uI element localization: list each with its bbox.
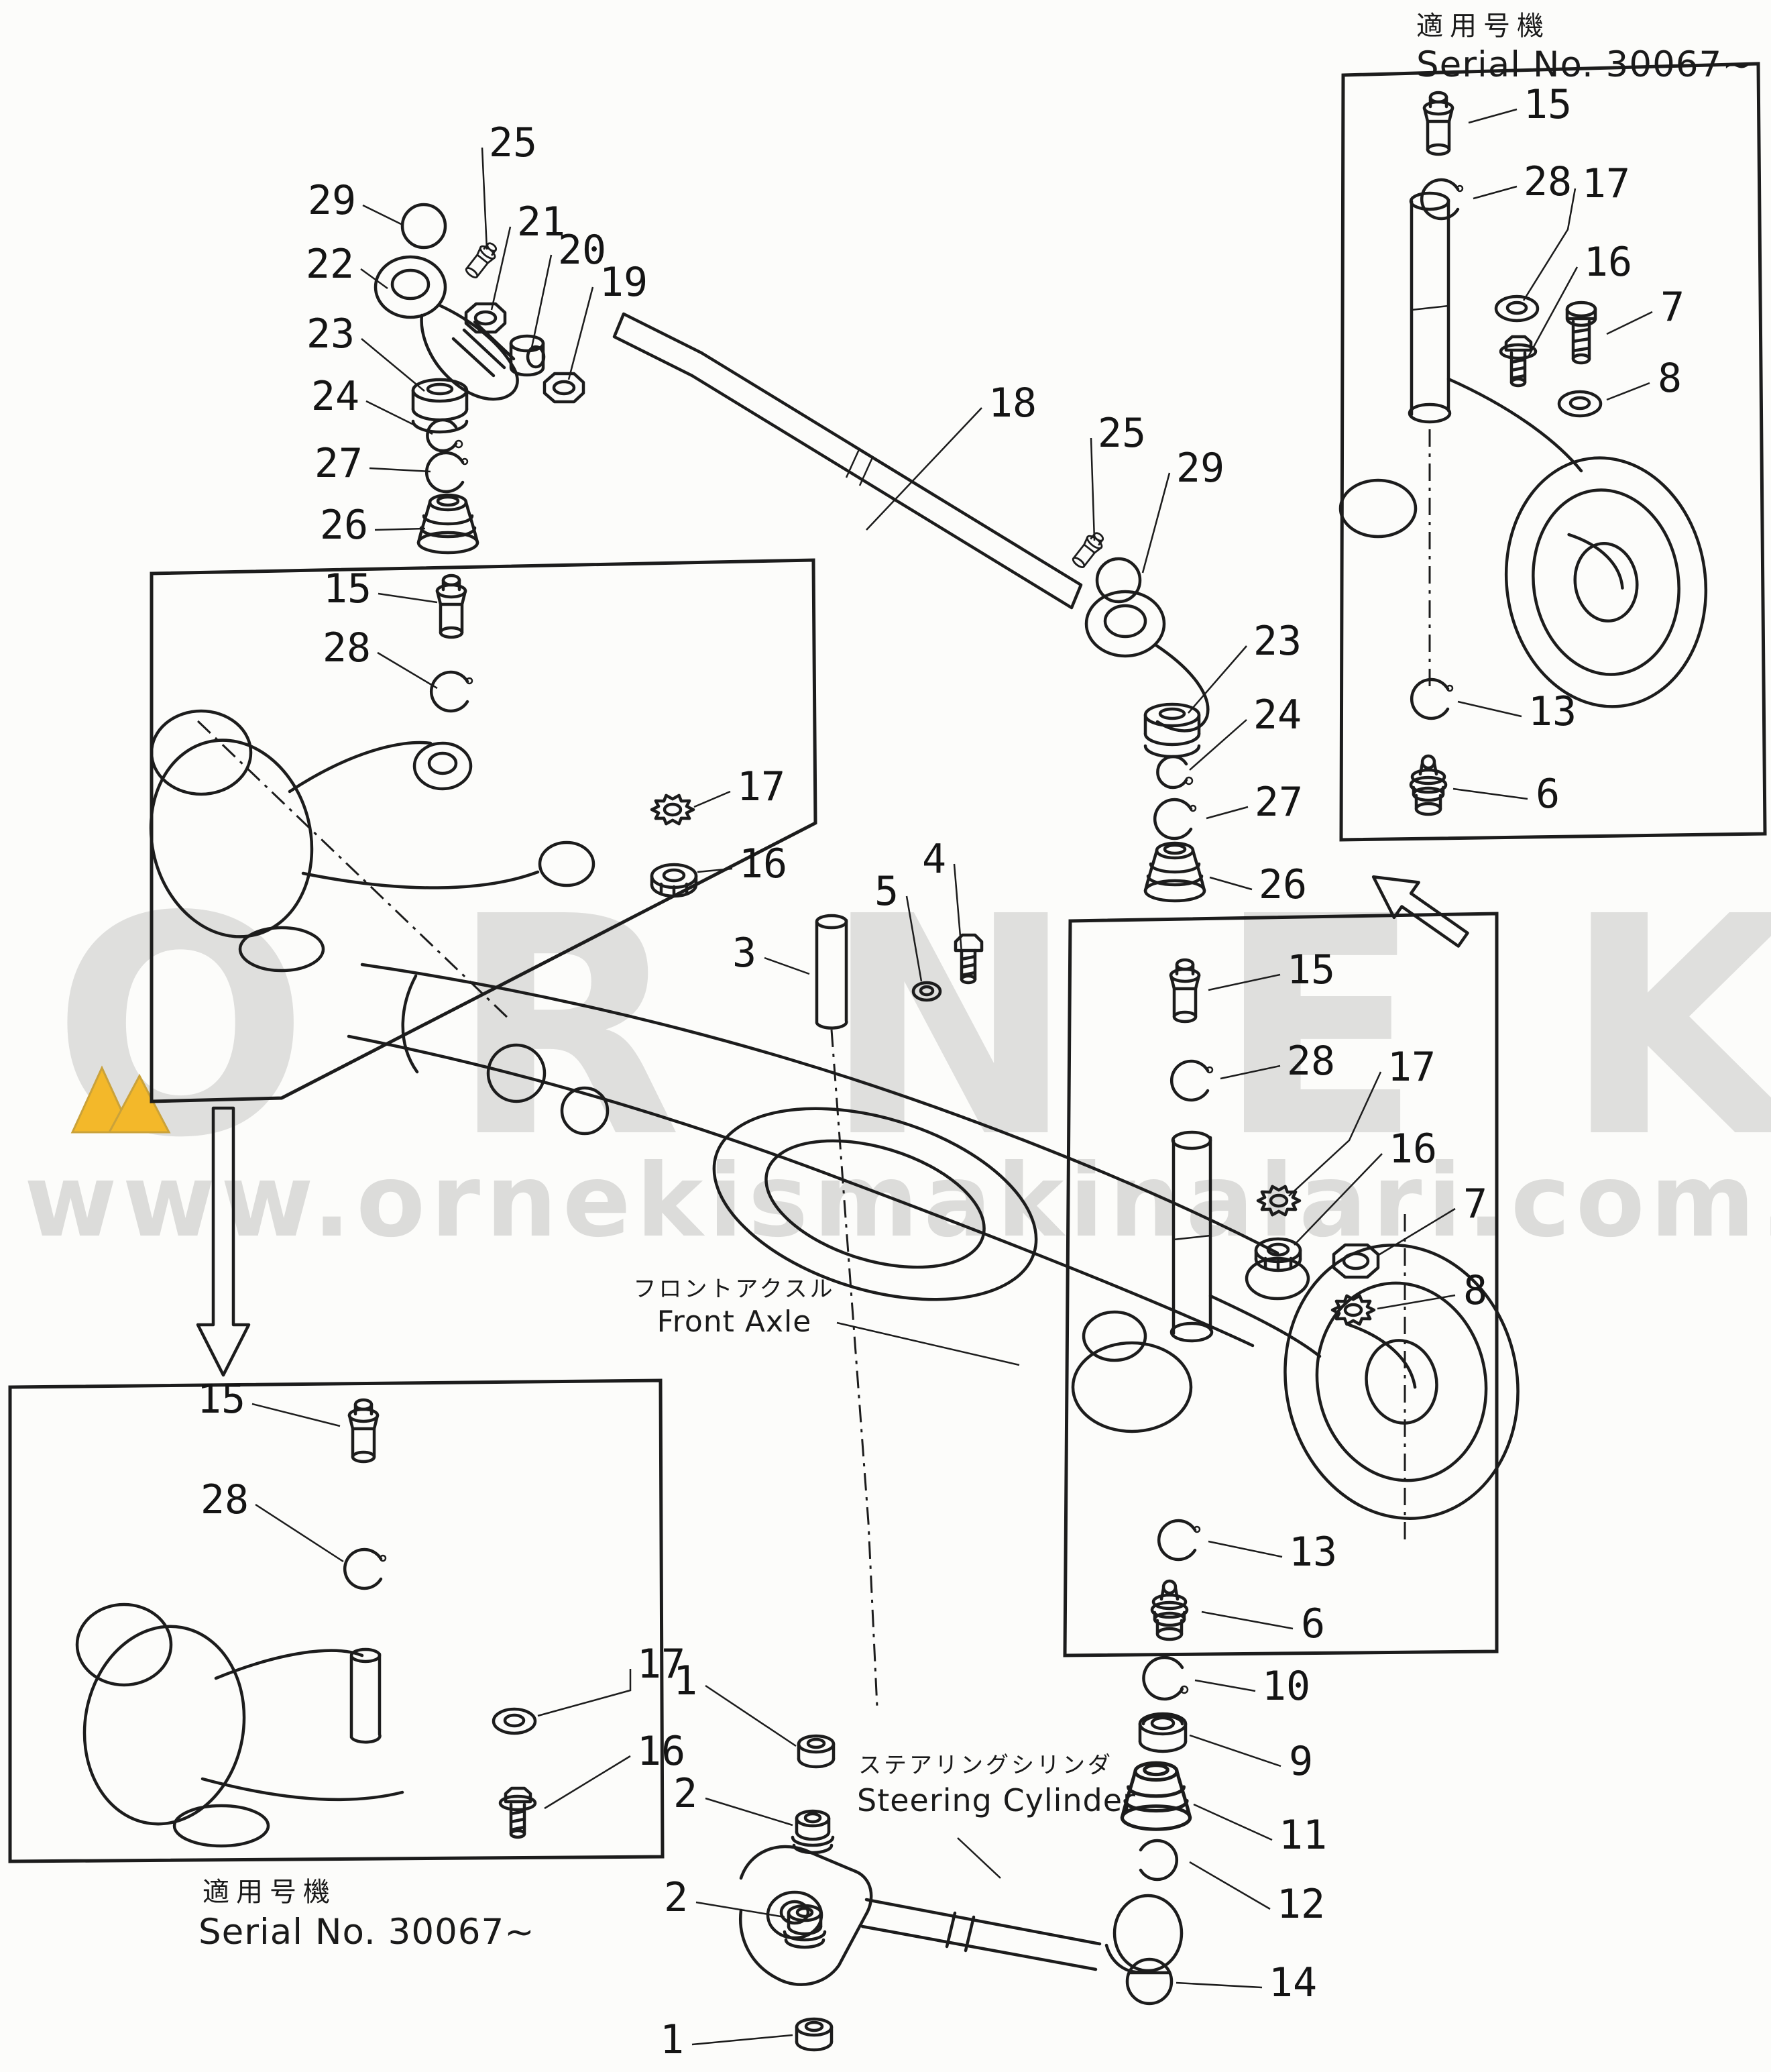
part-outline bbox=[1163, 1581, 1176, 1593]
leader-line bbox=[1453, 789, 1528, 799]
part-outline bbox=[1145, 746, 1199, 757]
part-glyph-fitting_s bbox=[463, 239, 501, 280]
part-glyph-boot bbox=[418, 495, 477, 553]
callout-item-17: 17 bbox=[494, 1641, 685, 1733]
tr-kingpin-tube-joint bbox=[1412, 306, 1448, 310]
part-glyph-nut bbox=[466, 304, 505, 332]
part-glyph-snap bbox=[345, 1549, 386, 1588]
callout-item-2: 2 bbox=[673, 1770, 833, 1853]
callout-number: 15 bbox=[1524, 81, 1572, 128]
leader-line bbox=[1190, 1862, 1270, 1909]
callout-number: 24 bbox=[1253, 692, 1302, 739]
leader-line bbox=[705, 1686, 796, 1746]
left-knuckle-arm-upper bbox=[290, 743, 431, 792]
part-outline bbox=[437, 585, 465, 597]
callout-number: 5 bbox=[874, 868, 899, 915]
part-outline bbox=[1160, 709, 1184, 718]
leader-line bbox=[369, 468, 431, 472]
leader-line bbox=[1143, 473, 1169, 573]
right-knuckle-hub bbox=[1260, 1223, 1543, 1541]
part-glyph-stud bbox=[1411, 756, 1446, 814]
callout-number: 8 bbox=[1463, 1267, 1487, 1314]
part-outline bbox=[465, 266, 479, 279]
callout-item-1: 1 bbox=[673, 1657, 834, 1767]
part-glyph-snap bbox=[1155, 800, 1196, 838]
leader-line bbox=[1176, 1983, 1262, 1987]
tie-rod-end-threads-left bbox=[453, 322, 514, 376]
leader-line bbox=[538, 1669, 630, 1716]
callout-number: 19 bbox=[599, 259, 648, 306]
callout-number: 15 bbox=[1287, 946, 1335, 993]
callout-number: 27 bbox=[315, 440, 363, 487]
callout-item-15: 15 bbox=[197, 1376, 378, 1462]
applicability-note-top-right: 適用号機 Serial No. 30067~ bbox=[1416, 4, 1753, 85]
callout-item-25: 25 bbox=[1070, 410, 1147, 570]
applicability-note-bottom-left: 適用号機 Serial No. 30067~ bbox=[198, 1870, 535, 1953]
callout-item-16: 16 bbox=[500, 1728, 685, 1837]
hub-disc-outer bbox=[1260, 1223, 1543, 1541]
callout-number: 6 bbox=[1301, 1600, 1325, 1647]
part-outline bbox=[402, 205, 445, 248]
part-outline bbox=[345, 1549, 381, 1588]
leader-line bbox=[1202, 1612, 1293, 1629]
part-outline bbox=[428, 384, 452, 394]
part-outline bbox=[1145, 1765, 1168, 1775]
part-outline bbox=[797, 1908, 812, 1916]
leader-line bbox=[1188, 646, 1247, 713]
leader-line bbox=[1607, 383, 1650, 400]
callout-number: 26 bbox=[320, 502, 368, 549]
callout-number: 1 bbox=[673, 1657, 697, 1704]
part-outline bbox=[1573, 355, 1589, 363]
callout-item-19: 19 bbox=[545, 259, 648, 402]
leader-line bbox=[569, 287, 593, 380]
front-axle-leader-line bbox=[837, 1323, 1019, 1365]
part-outline bbox=[505, 1715, 524, 1726]
tr-kingpin-tube-top bbox=[1411, 193, 1448, 209]
part-outline bbox=[1559, 392, 1601, 416]
part-outline bbox=[1127, 1959, 1172, 2004]
callout-number: 8 bbox=[1658, 355, 1682, 402]
part-outline bbox=[413, 421, 467, 432]
leader-line bbox=[694, 792, 730, 807]
part-outline bbox=[652, 796, 693, 824]
part-glyph-snap bbox=[1422, 180, 1463, 219]
callout-item-21: 21 bbox=[466, 199, 565, 332]
part-glyph-nut bbox=[545, 374, 583, 402]
leader-line bbox=[1208, 1541, 1282, 1557]
parts-catalog-page: ORNEK www.ornekismakinalari.com.tr bbox=[0, 0, 1771, 2072]
part-glyph-bushing bbox=[799, 1736, 834, 1767]
callout-number: 27 bbox=[1255, 779, 1303, 826]
callout-number: 29 bbox=[308, 177, 356, 224]
part-detail bbox=[1190, 806, 1196, 811]
callout-number: 25 bbox=[489, 119, 537, 166]
steering-cylinder-label: ステアリングシリンダ Steering Cylinder bbox=[857, 1747, 1115, 1818]
leader-line bbox=[378, 594, 437, 602]
part-outline bbox=[1157, 1629, 1182, 1639]
applicability-serial-number: Serial No. 30067~ bbox=[1416, 44, 1753, 85]
part-outline bbox=[806, 2022, 822, 2030]
part-outline bbox=[1152, 1718, 1174, 1729]
tie-rod-end-eye-right-bore bbox=[1105, 606, 1145, 637]
callout-number: 17 bbox=[1387, 1044, 1436, 1091]
tr-knuckle-ball bbox=[1340, 480, 1416, 537]
callout-number: 28 bbox=[323, 624, 371, 671]
detail-box-bottom-left-knuckle bbox=[10, 1380, 663, 1861]
part-outline bbox=[427, 420, 456, 451]
part-glyph-washer bbox=[494, 1709, 535, 1733]
callout-number: 28 bbox=[1287, 1038, 1335, 1085]
leader-line bbox=[255, 1505, 343, 1562]
part-outline bbox=[1570, 398, 1589, 408]
part-outline bbox=[1414, 788, 1443, 800]
front-axle-label: フロントアクスル Front Axle bbox=[624, 1270, 845, 1339]
part-outline bbox=[665, 804, 681, 815]
part-outline bbox=[808, 1739, 824, 1747]
part-outline bbox=[799, 1759, 834, 1767]
part-glyph-seal bbox=[1140, 1714, 1186, 1751]
leader-line bbox=[1091, 438, 1094, 541]
part-outline bbox=[349, 1409, 378, 1421]
callout-number: 7 bbox=[1660, 284, 1684, 331]
part-glyph-fitting_s bbox=[1070, 529, 1108, 570]
part-outline bbox=[1155, 800, 1191, 838]
callout-number: 9 bbox=[1289, 1738, 1313, 1785]
left-knuckle-arm-eye-bore bbox=[429, 753, 456, 773]
part-outline bbox=[797, 2042, 832, 2050]
callout-number: 26 bbox=[1259, 861, 1307, 908]
applicability-serial-number: Serial No. 30067~ bbox=[198, 1912, 535, 1953]
leader-line bbox=[692, 2035, 793, 2044]
part-glyph-ring bbox=[1157, 757, 1192, 787]
part-outline bbox=[466, 304, 505, 332]
leader-line bbox=[866, 408, 982, 530]
part-outline bbox=[1165, 845, 1185, 853]
part-outline bbox=[793, 1832, 833, 1853]
steering-cylinder-jp-text: ステアリングシリンダ bbox=[857, 1747, 1115, 1780]
leader-line bbox=[1194, 1804, 1272, 1840]
front-axle-jp-text: フロントアクスル bbox=[624, 1270, 845, 1303]
tr-kingpin-tube-bottom bbox=[1410, 404, 1450, 422]
leader-line bbox=[492, 227, 510, 310]
callout-number: 17 bbox=[737, 763, 785, 810]
callout-item-26: 26 bbox=[320, 495, 477, 553]
part-outline bbox=[1157, 757, 1186, 787]
leader-line bbox=[532, 255, 551, 347]
front-axle-en-text: Front Axle bbox=[624, 1305, 845, 1339]
leader-line bbox=[1190, 1735, 1281, 1766]
part-glyph-ball bbox=[402, 205, 445, 248]
part-glyph-washer bbox=[1496, 296, 1538, 321]
part-outline bbox=[1097, 559, 1140, 602]
leader-line bbox=[1469, 109, 1517, 123]
tr-hub-outer bbox=[1491, 445, 1722, 720]
part-outline bbox=[1422, 180, 1458, 219]
part-glyph-snap bbox=[1412, 679, 1452, 718]
callout-item-20: 20 bbox=[511, 227, 606, 375]
callout-number: 6 bbox=[1536, 771, 1560, 818]
part-detail bbox=[380, 1556, 386, 1561]
part-glyph-fitting bbox=[1424, 93, 1452, 154]
leader-line bbox=[361, 339, 424, 391]
callout-number: 2 bbox=[673, 1770, 697, 1817]
bl-knuckle-foot bbox=[174, 1806, 268, 1846]
leader-line bbox=[378, 653, 437, 688]
part-glyph-bushing2 bbox=[793, 1811, 833, 1853]
leader-line bbox=[1473, 186, 1517, 199]
tr-hub-inner bbox=[1570, 539, 1642, 625]
callout-number: 18 bbox=[988, 380, 1037, 427]
part-outline bbox=[438, 497, 458, 505]
bl-kingpin bbox=[351, 1654, 380, 1742]
part-outline bbox=[1507, 303, 1526, 313]
callout-number: 22 bbox=[306, 241, 354, 288]
part-glyph-fitting bbox=[437, 576, 465, 637]
part-outline bbox=[1567, 303, 1595, 316]
part-glyph-bushing bbox=[797, 2019, 832, 2050]
part-outline bbox=[1159, 1521, 1195, 1560]
callout-number: 1 bbox=[660, 2016, 684, 2063]
part-outline bbox=[441, 628, 462, 637]
callout-number: 16 bbox=[1584, 239, 1632, 286]
part-outline bbox=[1141, 1841, 1177, 1879]
left-knuckle-arm-eye bbox=[414, 743, 471, 789]
part-outline bbox=[1511, 379, 1525, 386]
tr-hub-mid bbox=[1522, 480, 1691, 684]
callout-item-7: 7 bbox=[1567, 284, 1684, 363]
leader-line bbox=[363, 205, 402, 225]
part-outline bbox=[413, 409, 467, 420]
part-glyph-bolt7 bbox=[1567, 303, 1595, 363]
cylinder-rod-socket-thread bbox=[1106, 1945, 1148, 1972]
tr-knuckle-arm bbox=[1448, 379, 1581, 471]
applicability-jp-label: 適用号機 bbox=[203, 1870, 535, 1909]
bl-knuckle-arm-upper bbox=[216, 1651, 362, 1678]
callout-number: 25 bbox=[1098, 410, 1146, 457]
part-glyph-star bbox=[652, 796, 693, 824]
callout-number: 17 bbox=[1582, 160, 1630, 207]
part-outline bbox=[431, 672, 467, 711]
part-glyph-snap bbox=[431, 672, 472, 711]
callout-item-6: 6 bbox=[1152, 1581, 1325, 1647]
part-outline bbox=[1145, 734, 1199, 745]
part-outline bbox=[1345, 1305, 1361, 1315]
part-outline bbox=[494, 1709, 535, 1733]
cylinder-rod bbox=[862, 1900, 1100, 1969]
callout-number: 10 bbox=[1262, 1663, 1310, 1710]
callout-number: 14 bbox=[1269, 1959, 1317, 2006]
leader-line bbox=[1206, 807, 1248, 818]
mr-knuckle-arm bbox=[1210, 1296, 1320, 1356]
part-glyph-cap bbox=[1127, 1959, 1172, 2004]
callout-number: 29 bbox=[1176, 445, 1224, 492]
part-outline bbox=[554, 382, 574, 394]
callout-item-27: 27 bbox=[315, 440, 467, 492]
callout-number: 23 bbox=[1253, 618, 1302, 665]
part-glyph-ball bbox=[1097, 559, 1140, 602]
part-glyph-snap bbox=[426, 453, 467, 492]
part-outline bbox=[1428, 145, 1449, 154]
callout-item-29: 29 bbox=[308, 177, 445, 248]
callout-item-14: 14 bbox=[1127, 1959, 1317, 2006]
callout-item-1: 1 bbox=[660, 2016, 832, 2063]
callout-number: 16 bbox=[1389, 1126, 1437, 1173]
leader-line bbox=[1195, 1680, 1255, 1691]
part-detail bbox=[467, 678, 472, 684]
callout-item-17: 17 bbox=[652, 763, 785, 824]
callout-number: 28 bbox=[201, 1476, 249, 1523]
part-outline bbox=[1143, 1657, 1182, 1699]
callout-number: 15 bbox=[197, 1376, 245, 1423]
part-outline bbox=[1424, 102, 1452, 114]
callout-number: 2 bbox=[664, 1874, 688, 1921]
part-outline bbox=[1496, 296, 1538, 321]
callout-item-15: 15 bbox=[1424, 81, 1572, 154]
callout-number: 4 bbox=[922, 836, 946, 883]
part-glyph-snap bbox=[1159, 1521, 1200, 1560]
leader-line bbox=[1377, 1295, 1455, 1309]
leader-line bbox=[375, 529, 425, 530]
bl-knuckle-body bbox=[69, 1614, 260, 1837]
callout-number: 13 bbox=[1289, 1529, 1337, 1576]
part-outline bbox=[353, 1452, 374, 1462]
hub-disc-inner bbox=[1359, 1334, 1444, 1430]
callout-number: 23 bbox=[306, 311, 355, 358]
part-glyph-washer bbox=[1559, 392, 1601, 416]
callout-number: 11 bbox=[1279, 1812, 1327, 1859]
tie-rod-end-eye-left-bore bbox=[392, 270, 429, 298]
leader-line bbox=[1607, 312, 1652, 334]
tr-hub-spiral bbox=[1569, 529, 1623, 595]
callout-item-13: 13 bbox=[1412, 679, 1577, 735]
callout-number: 28 bbox=[1524, 158, 1572, 205]
steering-cylinder-en-text: Steering Cylinder bbox=[857, 1782, 1115, 1818]
callout-item-28: 28 bbox=[1422, 158, 1572, 219]
part-outline bbox=[511, 1831, 524, 1837]
part-detail bbox=[1194, 1527, 1200, 1532]
leader-line bbox=[1458, 702, 1522, 716]
leader-line bbox=[482, 148, 487, 250]
tie-rod-left-stub bbox=[614, 314, 701, 376]
part-outline bbox=[805, 1814, 820, 1822]
part-glyph-bolt16 bbox=[1501, 337, 1536, 386]
part-outline bbox=[1416, 804, 1440, 814]
part-glyph-snap12 bbox=[1141, 1841, 1177, 1879]
steering-cylinder-leader-line bbox=[958, 1838, 1001, 1878]
callout-number: 13 bbox=[1528, 688, 1577, 735]
part-outline bbox=[1422, 756, 1434, 768]
part-glyph-ring bbox=[427, 420, 462, 451]
callout-item-29: 29 bbox=[1097, 445, 1224, 602]
part-glyph-fitting bbox=[349, 1400, 378, 1462]
leader-line bbox=[252, 1404, 340, 1426]
callout-item-10: 10 bbox=[1143, 1657, 1310, 1710]
applicability-jp-label: 適用号機 bbox=[1416, 4, 1753, 43]
part-glyph-stud bbox=[1152, 1581, 1187, 1639]
part-outline bbox=[1567, 309, 1595, 325]
leader-line bbox=[705, 1798, 793, 1825]
part-outline bbox=[1155, 1613, 1184, 1625]
callout-item-28: 28 bbox=[201, 1476, 386, 1588]
part-glyph-ring10 bbox=[1143, 1657, 1188, 1699]
leader-line bbox=[545, 1756, 630, 1808]
callout-item-6: 6 bbox=[1411, 756, 1560, 818]
part-outline bbox=[475, 312, 496, 324]
part-outline bbox=[1573, 321, 1589, 359]
bl-knuckle-arm-lower bbox=[203, 1779, 402, 1800]
callout-number: 15 bbox=[323, 565, 372, 612]
part-outline bbox=[426, 453, 463, 492]
part-detail bbox=[1447, 686, 1452, 691]
part-outline bbox=[1072, 556, 1086, 569]
callout-number: 16 bbox=[637, 1728, 685, 1775]
part-glyph-bolt16 bbox=[500, 1788, 535, 1837]
mr-kingpin-tube-bottom bbox=[1172, 1323, 1212, 1341]
part-outline bbox=[545, 374, 583, 402]
callout-item-13: 13 bbox=[1159, 1521, 1337, 1576]
callout-number: 12 bbox=[1277, 1881, 1325, 1928]
part-detail bbox=[1457, 186, 1463, 191]
bl-kingpin-top bbox=[351, 1649, 380, 1661]
callout-number: 24 bbox=[311, 373, 359, 420]
callout-number: 16 bbox=[739, 840, 787, 887]
part-detail bbox=[462, 459, 467, 464]
tr-knuckle-hub bbox=[1491, 445, 1722, 720]
callout-number: 3 bbox=[732, 930, 756, 977]
callout-number: 7 bbox=[1463, 1181, 1487, 1228]
